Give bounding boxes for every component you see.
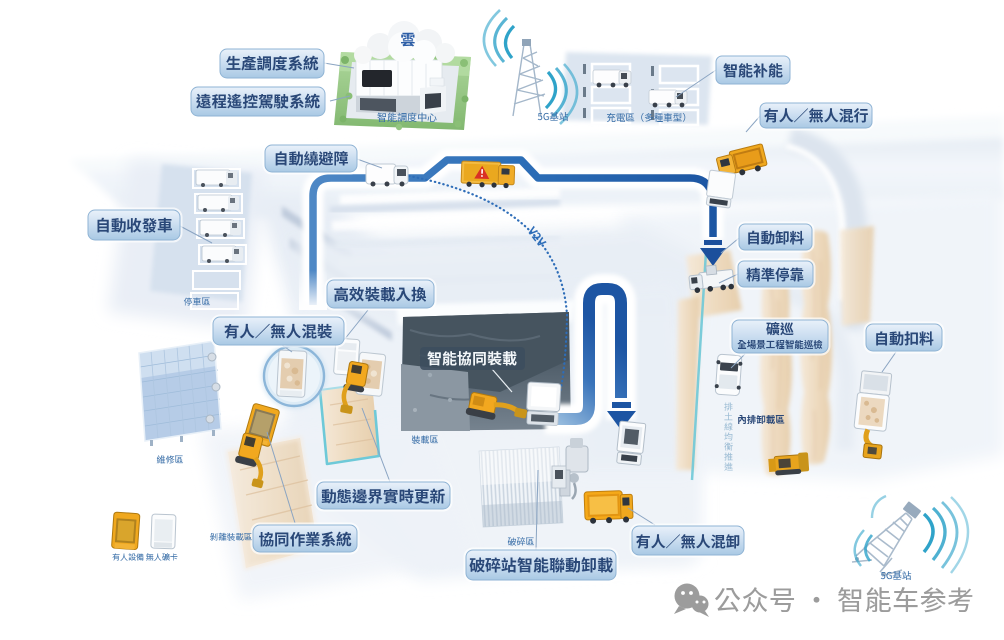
svg-text:有人設備 無人礦卡: 有人設備 無人礦卡 — [112, 552, 178, 563]
svg-text:智能补能: 智能补能 — [723, 60, 783, 81]
svg-text:自動扣料: 自動扣料 — [874, 328, 934, 349]
svg-text:生產調度系統: 生產調度系統 — [225, 52, 319, 74]
svg-text:內排卸載區: 內排卸載區 — [737, 412, 785, 426]
svg-text:礦巡: 礦巡 — [766, 319, 794, 339]
svg-text:5G基站: 5G基站 — [538, 109, 569, 123]
svg-text:剝離裝載區: 剝離裝載區 — [210, 531, 253, 543]
svg-text:維修區: 維修區 — [155, 453, 183, 466]
svg-text:有人／無人混裝: 有人／無人混裝 — [224, 320, 333, 342]
svg-text:雲: 雲 — [400, 29, 415, 50]
svg-text:停車區: 停車區 — [183, 295, 210, 308]
svg-text:智能調度中心: 智能調度中心 — [377, 109, 437, 124]
svg-text:精準停靠: 精準停靠 — [746, 264, 804, 285]
svg-text:智能協同裝載: 智能協同裝載 — [427, 348, 517, 369]
svg-text:遠程遙控駕駛系統: 遠程遙控駕駛系統 — [196, 90, 321, 112]
svg-text:有人／無人混行: 有人／無人混行 — [763, 105, 868, 126]
svg-text:公众号 · 智能车参考: 公众号 · 智能车参考 — [714, 579, 975, 618]
svg-text:自動收發車: 自動收發車 — [95, 214, 173, 236]
svg-text:動態邊界實時更新: 動態邊界實時更新 — [321, 485, 445, 507]
svg-text:有人／無人混卸: 有人／無人混卸 — [635, 531, 740, 552]
svg-text:高效裝載入換: 高效裝載入換 — [333, 283, 427, 305]
svg-text:破碎站智能聯動卸載: 破碎站智能聯動卸載 — [469, 552, 613, 576]
svg-text:排土線均衡推進: 排土線均衡推進 — [723, 400, 734, 473]
svg-text:協同作業系統: 協同作業系統 — [258, 528, 352, 550]
svg-text:裝載區: 裝載區 — [410, 433, 438, 446]
svg-text:自動卸料: 自動卸料 — [746, 227, 804, 248]
svg-text:全場景工程智能巡檢: 全場景工程智能巡檢 — [737, 337, 823, 351]
svg-text:充電區（多種車型）: 充電區（多種車型） — [606, 110, 692, 124]
svg-text:破碎區: 破碎區 — [506, 535, 534, 548]
svg-text:自動繞避障: 自動繞避障 — [273, 148, 348, 169]
